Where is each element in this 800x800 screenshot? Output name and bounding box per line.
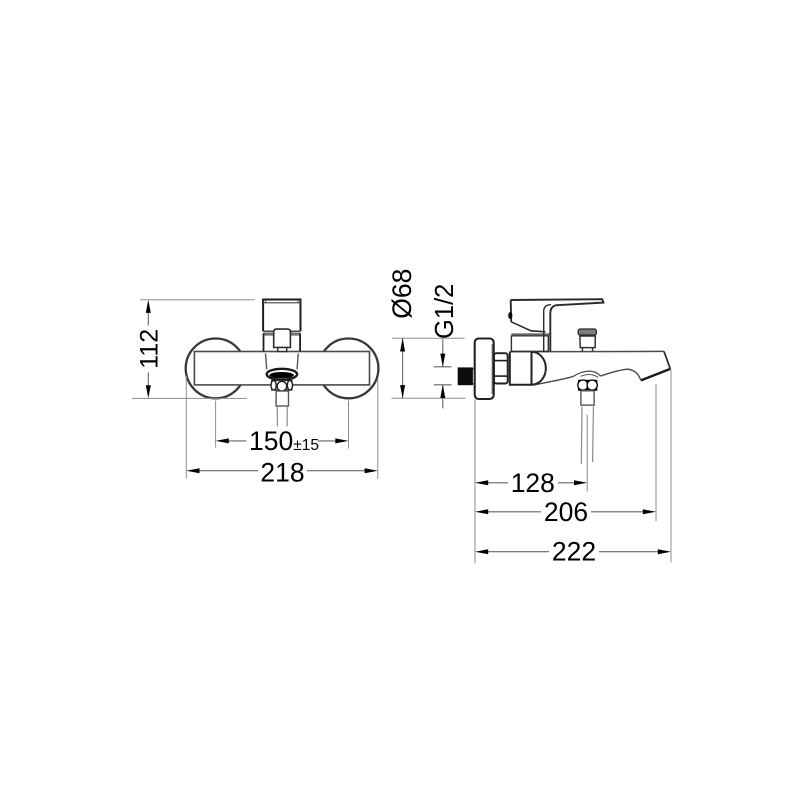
svg-text:206: 206 xyxy=(544,497,588,527)
svg-text:128: 128 xyxy=(511,468,555,498)
svg-text:Ø68: Ø68 xyxy=(387,269,417,319)
svg-text:G1/2: G1/2 xyxy=(431,284,459,339)
svg-text:222: 222 xyxy=(552,537,596,567)
svg-text:112: 112 xyxy=(135,329,163,369)
svg-text:218: 218 xyxy=(260,457,304,487)
